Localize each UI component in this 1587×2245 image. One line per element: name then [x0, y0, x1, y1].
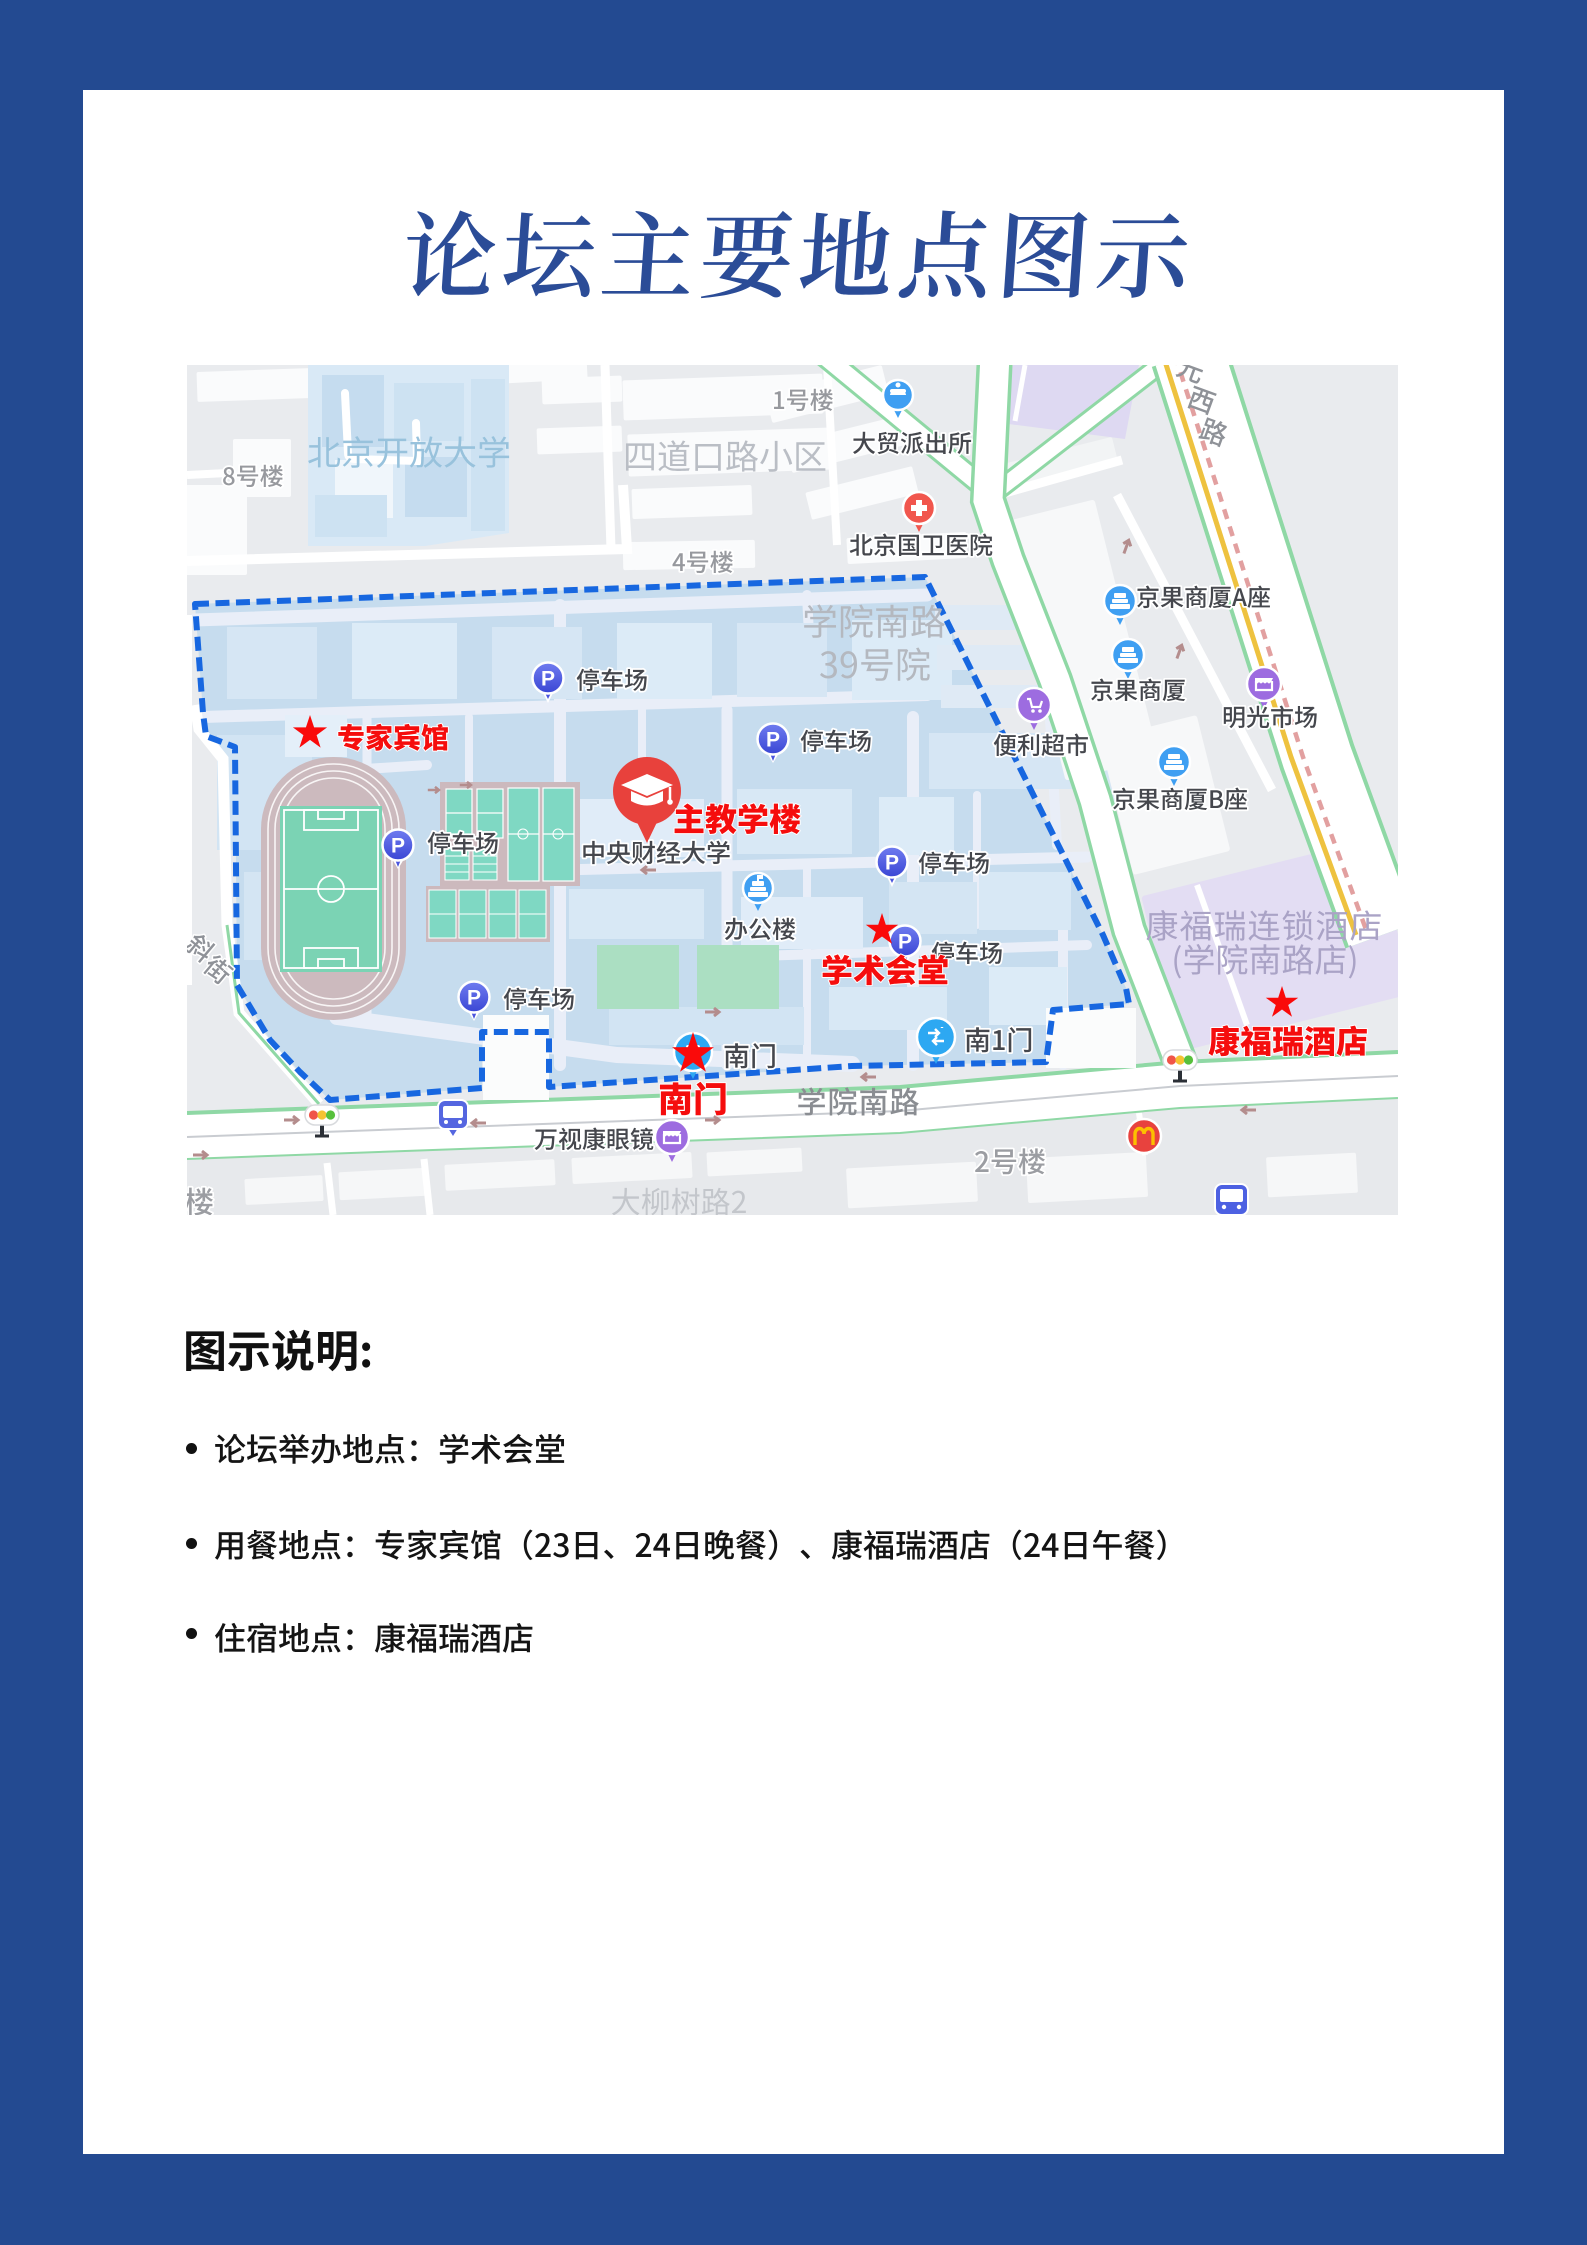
svg-text:P: P: [898, 931, 912, 954]
svg-text:P: P: [766, 729, 780, 752]
svg-text:P: P: [885, 852, 899, 875]
svg-text:P: P: [391, 835, 405, 858]
svg-text:P: P: [541, 668, 555, 691]
svg-text:P: P: [467, 987, 481, 1010]
